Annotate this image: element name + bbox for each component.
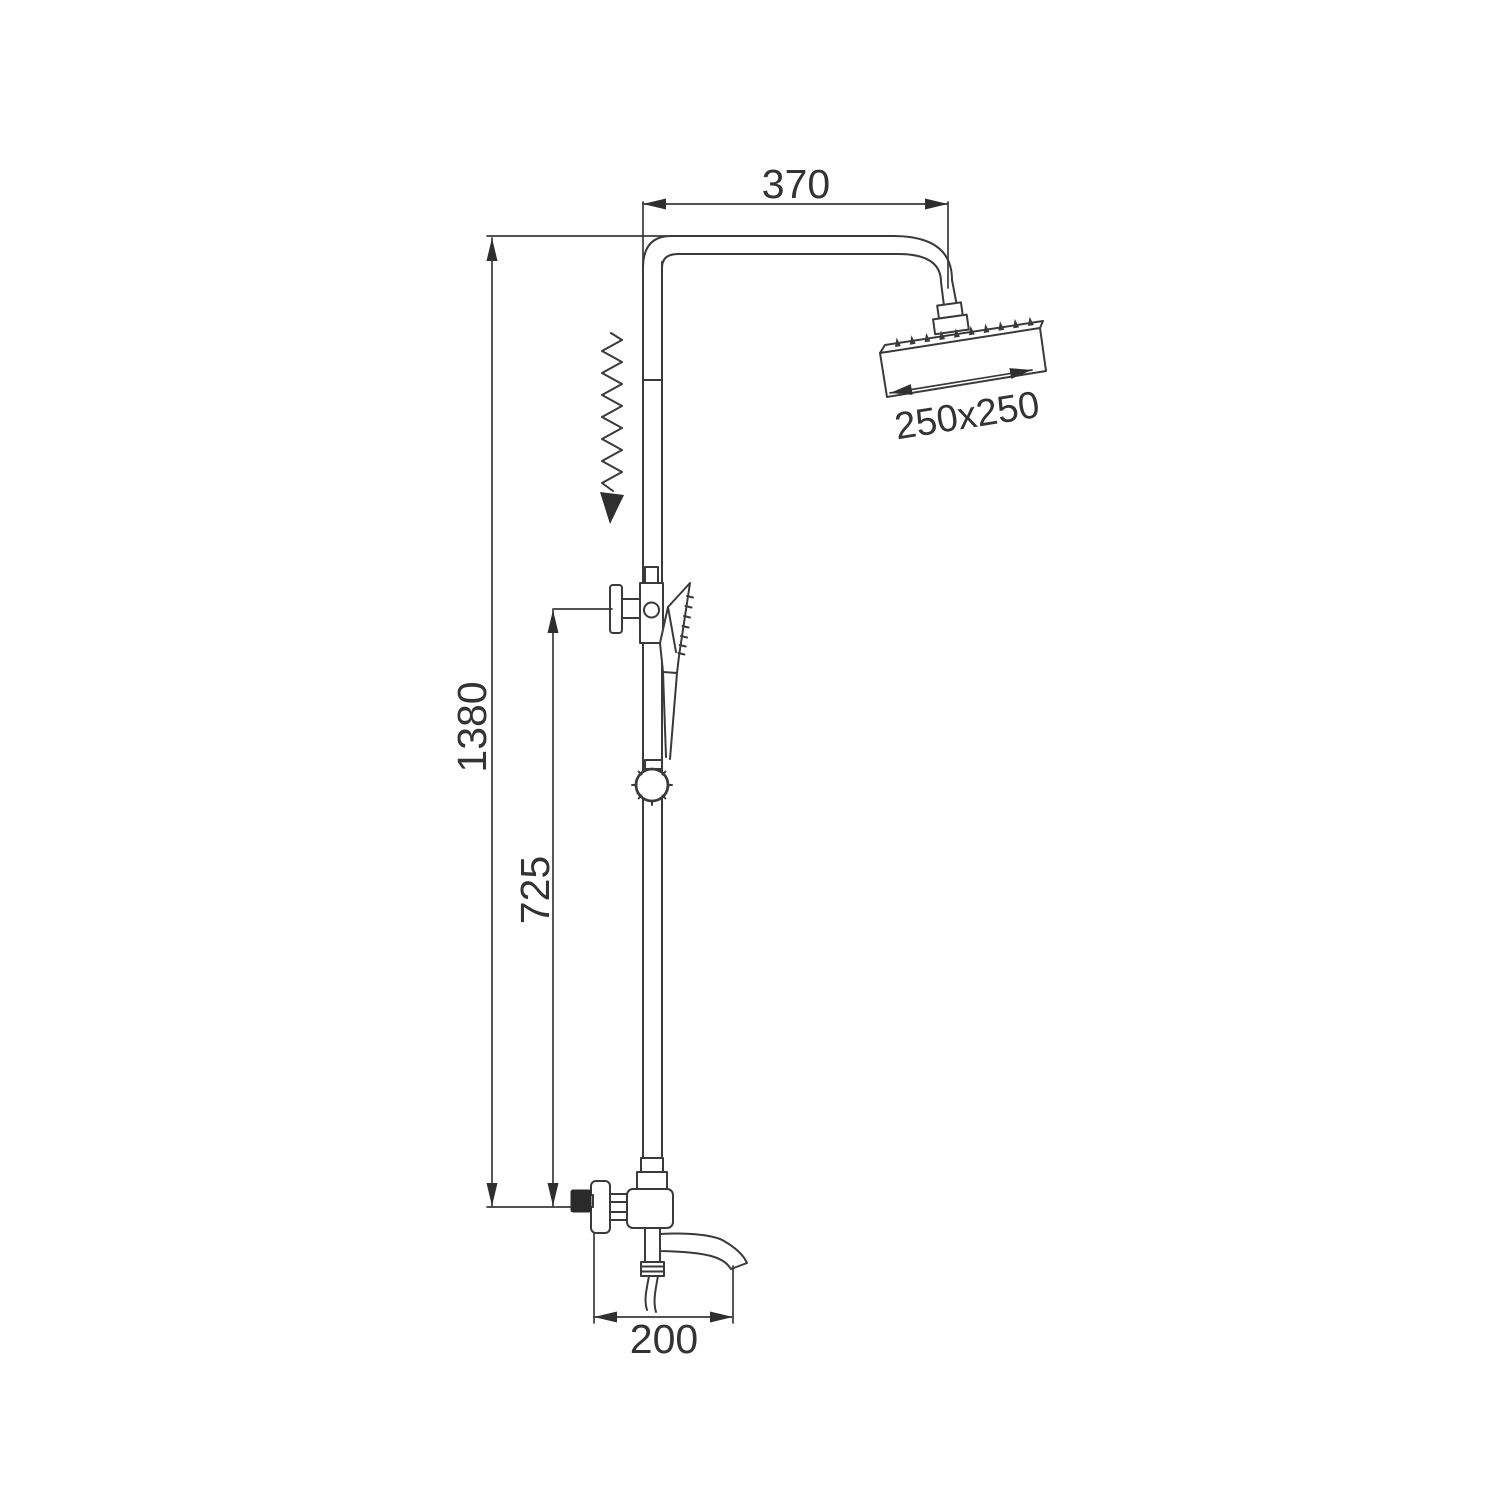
mid-height-label: 725 xyxy=(512,856,558,924)
dimension-top-width: 370 xyxy=(643,161,948,300)
holder-knob-stem xyxy=(622,599,640,618)
head-size-label: 250x250 xyxy=(892,384,1043,448)
shower-technical-drawing: 250x250 370 xyxy=(0,0,1500,1500)
valve-body xyxy=(627,1189,673,1228)
holder-pivot xyxy=(644,603,659,618)
tub-spout xyxy=(660,1233,747,1269)
shower-arm xyxy=(643,236,969,334)
top-width-label: 370 xyxy=(762,161,830,207)
shower-hose xyxy=(646,1276,658,1312)
hand-shower xyxy=(660,583,693,759)
valve-handle xyxy=(571,1190,591,1212)
overall-height-label: 1380 xyxy=(449,681,495,772)
bottom-width-label: 200 xyxy=(630,1316,698,1362)
riser-coupling xyxy=(641,1158,663,1172)
hand-shower-holder xyxy=(610,567,663,643)
arm-connector xyxy=(931,302,969,334)
spring-arrow xyxy=(600,333,624,524)
dimension-mid-height: 725 xyxy=(512,609,612,1206)
riser-pipe xyxy=(643,262,662,1172)
drawing-canvas: 250x250 370 xyxy=(0,0,1500,1500)
mixer-valve xyxy=(571,1158,747,1312)
hose-nut xyxy=(641,1262,664,1276)
wall-nut xyxy=(609,1194,627,1220)
hand-shower-handle xyxy=(663,672,666,757)
slider-ball xyxy=(632,760,672,805)
